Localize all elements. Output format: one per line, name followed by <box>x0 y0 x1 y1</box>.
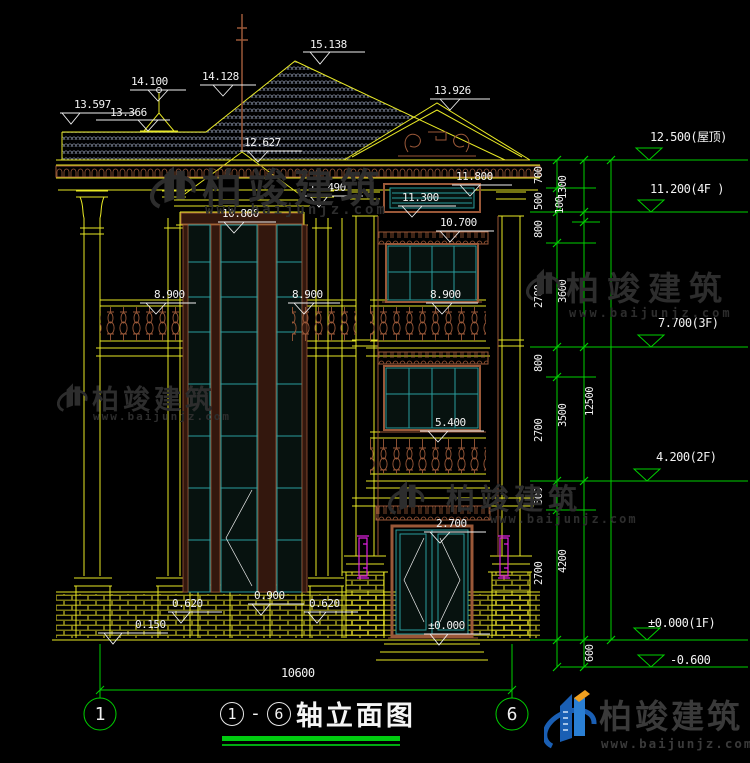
title-circle-start: 1 <box>220 702 244 726</box>
level-triangles <box>634 148 664 667</box>
chain-dim: 1300 <box>557 176 569 199</box>
title-underline-thick <box>222 736 400 741</box>
chain-dim: 800 <box>533 221 545 238</box>
logo-mark <box>544 684 598 758</box>
elevation-label: ±0.000 <box>428 619 465 632</box>
elevation-label: 14.100 <box>131 75 168 88</box>
elevation-label: 13.597 <box>74 98 111 111</box>
elevation-label: 12.627 <box>244 136 281 149</box>
title-dash: - <box>250 703 261 724</box>
cad-elevation-drawing: 15.138 14.100 14.128 13.926 13.597 13.36… <box>0 0 750 763</box>
balustrade-4f-right <box>370 307 486 341</box>
axis-label-1: 1 <box>90 704 110 725</box>
elevation-label: 10.700 <box>440 216 477 229</box>
drawing-title: 1 - 6 轴立面图 <box>220 694 416 733</box>
level-label-grade: -0.600 <box>670 653 710 667</box>
elevation-label: 13.366 <box>110 106 147 119</box>
watermark-logo-icon <box>388 472 426 520</box>
elevation-label: 0.620 <box>309 597 340 610</box>
chain-dim: 4200 <box>557 550 569 573</box>
elevation-label: 5.400 <box>435 416 466 429</box>
chain-dim: 800 <box>533 355 545 372</box>
title-underline-thin <box>222 744 400 746</box>
chain-dim: 3500 <box>557 404 569 427</box>
axis-label-6: 6 <box>502 704 522 725</box>
elevation-label: 11.800 <box>456 170 493 183</box>
chain-dim: 700 <box>533 167 545 184</box>
overall-width-label: 10600 <box>281 666 315 680</box>
watermark-logo-icon <box>526 260 562 306</box>
watermark-logo-icon <box>150 158 198 212</box>
elevation-label: 0.150 <box>135 618 166 631</box>
chain-dim: 100 <box>554 197 566 214</box>
balustrade-center <box>292 307 356 341</box>
watermark-site: www.baijunjz.com <box>569 306 733 320</box>
chain-dim: 500 <box>533 193 545 210</box>
level-label-4f: 11.200(4F ) <box>650 182 724 196</box>
level-label-2f: 4.200(2F) <box>656 450 717 464</box>
elevation-label: 2.700 <box>436 517 467 530</box>
title-circle-end: 6 <box>267 702 291 726</box>
elevation-label: 15.138 <box>310 38 347 51</box>
title-text: 轴立面图 <box>296 694 416 733</box>
watermark-site: www.baijunjz.com <box>205 202 388 218</box>
watermark-site: www.baijunjz.com <box>93 410 231 423</box>
elevation-label: 8.900 <box>154 288 185 301</box>
chain-dim: 2700 <box>533 562 545 585</box>
balustrade-left <box>100 307 184 341</box>
watermark-logo-icon <box>57 376 89 416</box>
elevation-label: 14.128 <box>202 70 239 83</box>
logo-brand-text: 柏竣建筑 <box>599 690 743 738</box>
level-label-1f: ±0.000(1F) <box>648 616 715 630</box>
chain-dim-base: 600 <box>584 645 596 662</box>
elevation-label: 13.926 <box>434 84 471 97</box>
elevation-label: 8.900 <box>430 288 461 301</box>
glass-fills <box>188 188 478 634</box>
watermark-site: www.baijunjz.com <box>490 512 638 526</box>
watermark-brand: 柏竣建筑 <box>566 262 730 310</box>
elevation-label: 8.900 <box>292 288 323 301</box>
logo-site-text: www.baijunjz.com <box>601 736 750 751</box>
shaft-mullion-wide <box>258 225 276 592</box>
balustrade-2f-right <box>370 439 486 474</box>
dimension-chains <box>546 160 611 667</box>
elevation-label: 0.620 <box>172 597 203 610</box>
level-label-roof: 12.500(屋顶) <box>650 128 727 145</box>
chain-dim-overall: 12500 <box>584 387 596 416</box>
chain-dim: 2700 <box>533 419 545 442</box>
mid-pilaster <box>310 191 342 576</box>
tower-left-column <box>350 192 380 556</box>
elevation-label: 11.300 <box>402 191 439 204</box>
elevation-label: 0.900 <box>254 589 285 602</box>
